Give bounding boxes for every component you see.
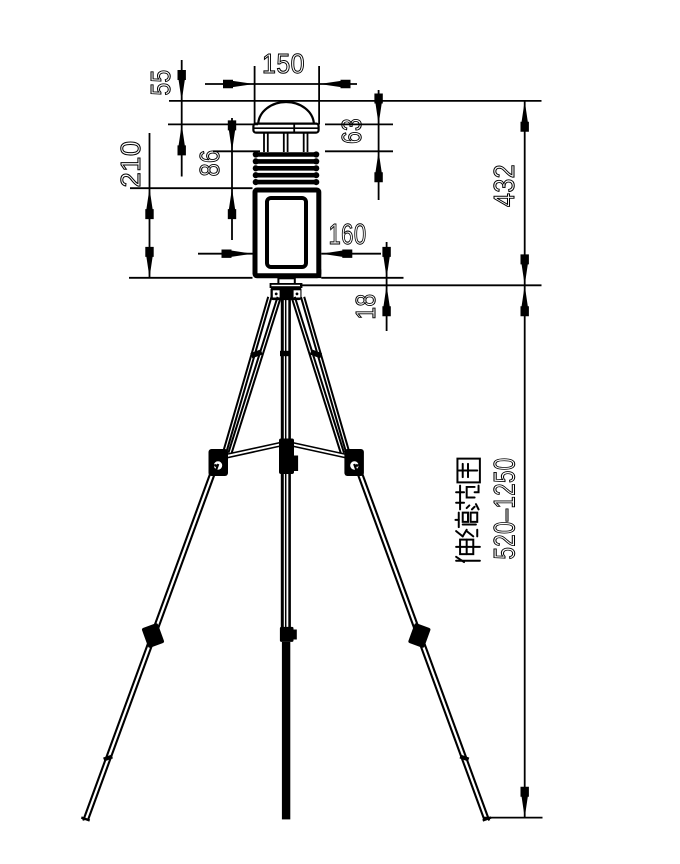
- svg-text:210: 210: [115, 141, 146, 188]
- svg-text:160: 160: [329, 219, 367, 251]
- svg-text:432: 432: [489, 164, 521, 207]
- svg-text:520–1250: 520–1250: [489, 458, 522, 560]
- svg-text:55: 55: [145, 70, 176, 96]
- svg-text:86: 86: [194, 150, 225, 177]
- svg-text:18: 18: [350, 294, 381, 320]
- svg-text:63: 63: [336, 118, 367, 144]
- svg-text:150: 150: [262, 48, 305, 79]
